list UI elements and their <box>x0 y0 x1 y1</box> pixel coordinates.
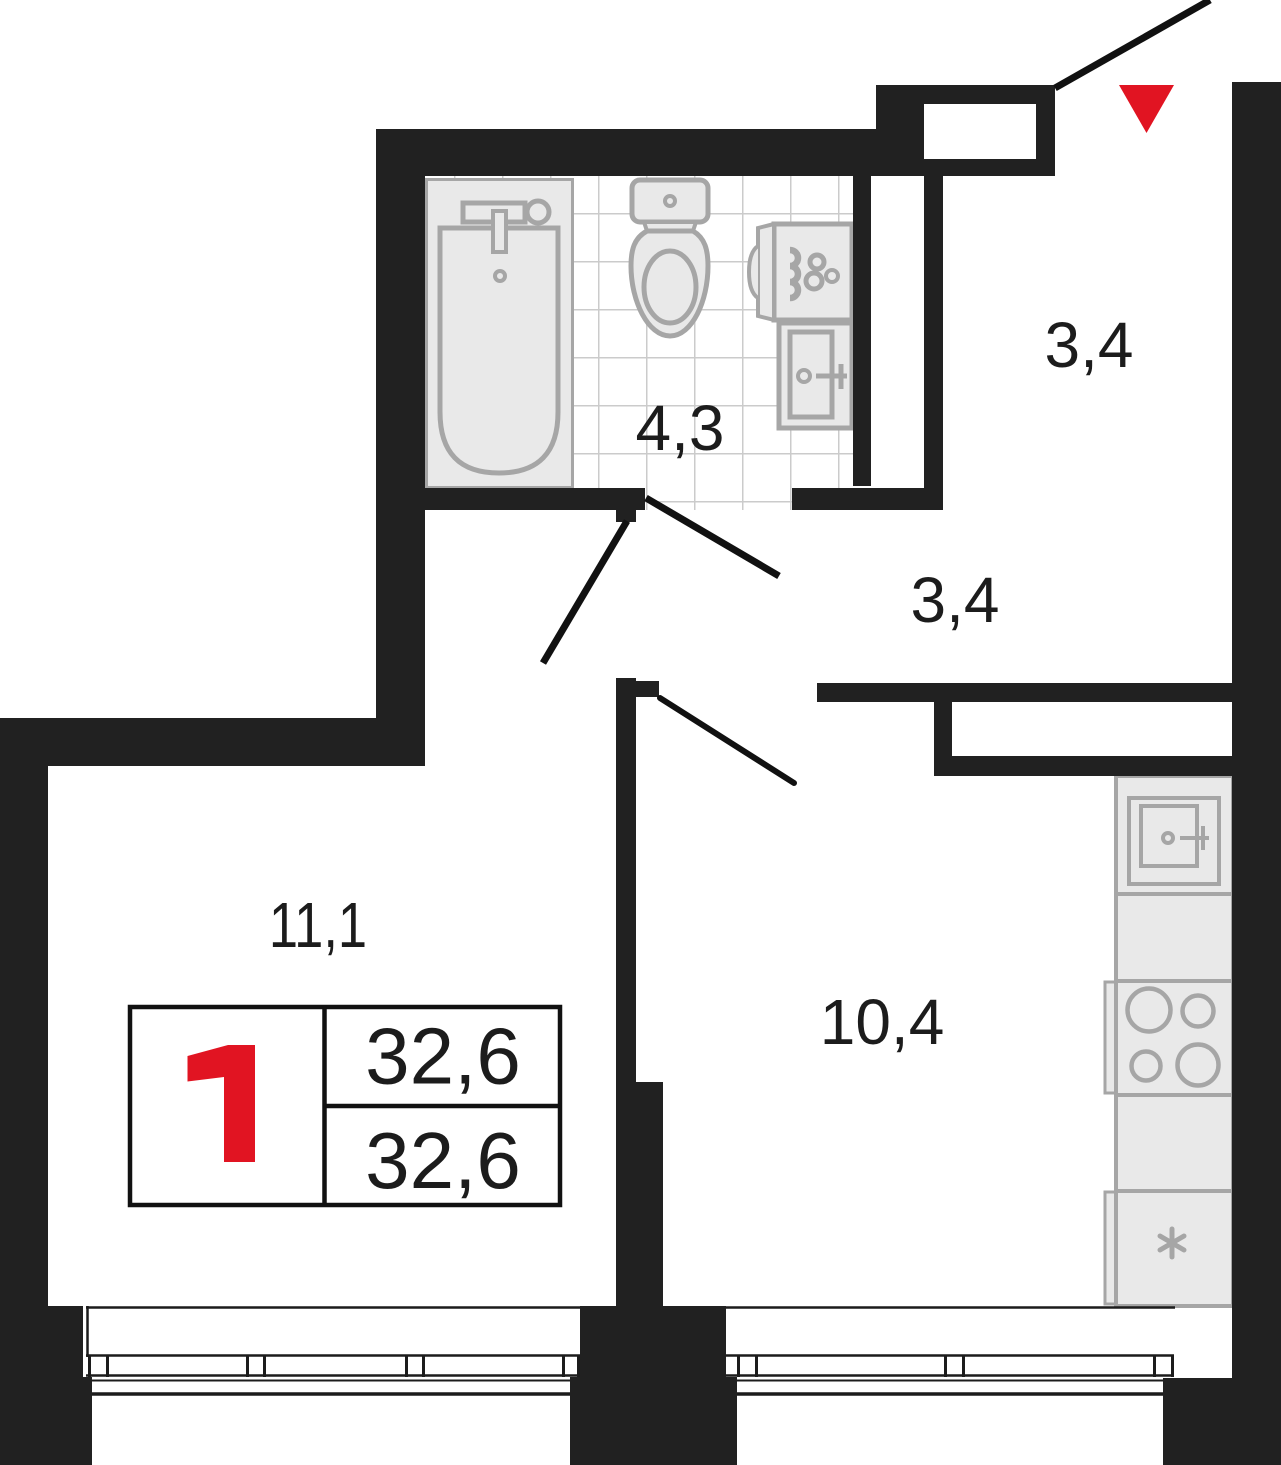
svg-text:3,4: 3,4 <box>1045 309 1134 381</box>
svg-text:4,3: 4,3 <box>636 392 725 464</box>
svg-text:10,4: 10,4 <box>820 986 945 1058</box>
svg-text:3,4: 3,4 <box>911 564 1000 636</box>
svg-text:32,6: 32,6 <box>365 1116 521 1205</box>
svg-text:32,6: 32,6 <box>365 1012 521 1101</box>
svg-text:11,1: 11,1 <box>269 890 367 961</box>
